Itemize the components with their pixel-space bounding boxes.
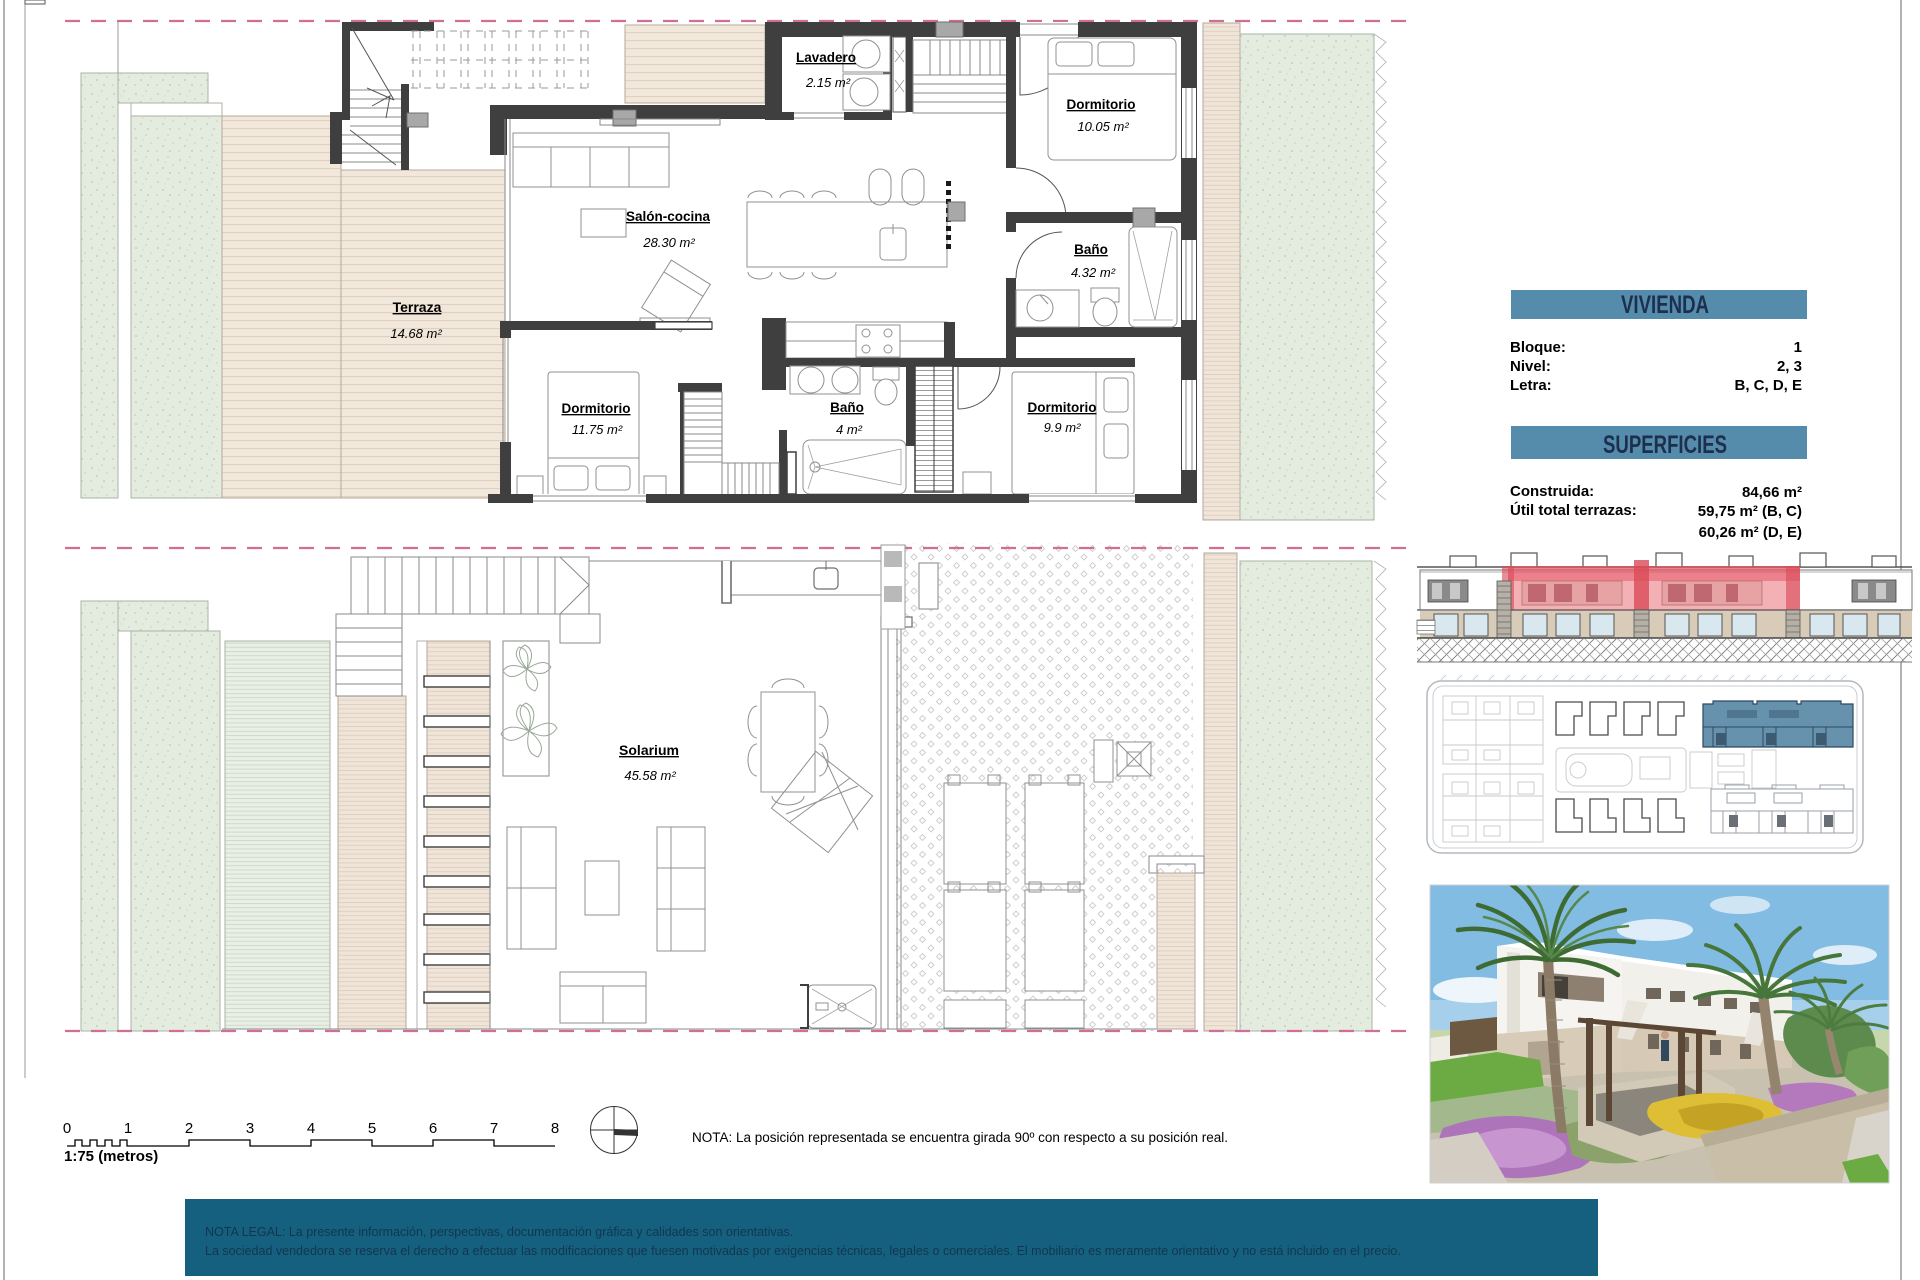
- svg-text:Terraza: Terraza: [393, 299, 442, 315]
- svg-text:5: 5: [368, 1120, 376, 1137]
- svg-text:1:75 (metros): 1:75 (metros): [64, 1148, 158, 1165]
- svg-text:60,26 m² (D, E): 60,26 m² (D, E): [1699, 524, 1802, 541]
- svg-text:Lavadero: Lavadero: [796, 50, 856, 65]
- svg-text:Construida:: Construida:: [1510, 483, 1594, 500]
- svg-text:Dormitorio: Dormitorio: [562, 401, 631, 416]
- svg-text:11.75 m²: 11.75 m²: [572, 422, 623, 437]
- svg-text:4: 4: [307, 1120, 315, 1137]
- svg-text:Dormitorio: Dormitorio: [1067, 97, 1136, 112]
- svg-text:B, C, D, E: B, C, D, E: [1734, 377, 1802, 394]
- svg-text:2: 2: [185, 1120, 193, 1137]
- svg-text:NOTA: La posición representada: NOTA: La posición representada se encuen…: [692, 1130, 1228, 1145]
- svg-text:2.15 m²: 2.15 m²: [805, 75, 851, 90]
- svg-text:Útil total terrazas:: Útil total terrazas:: [1510, 501, 1637, 519]
- svg-text:7: 7: [490, 1120, 498, 1137]
- svg-text:45.58 m²: 45.58 m²: [624, 768, 676, 783]
- svg-text:2, 3: 2, 3: [1777, 358, 1802, 375]
- svg-text:Nivel:: Nivel:: [1510, 358, 1551, 375]
- svg-text:84,66 m²: 84,66 m²: [1742, 484, 1802, 501]
- svg-text:1: 1: [1794, 339, 1802, 356]
- svg-text:8: 8: [551, 1120, 559, 1137]
- svg-text:1: 1: [124, 1120, 132, 1137]
- svg-text:Letra:: Letra:: [1510, 377, 1552, 394]
- svg-text:4.32 m²: 4.32 m²: [1071, 265, 1116, 280]
- svg-text:Baño: Baño: [1074, 242, 1108, 257]
- svg-text:4 m²: 4 m²: [836, 422, 863, 437]
- svg-text:NOTA LEGAL: La presente inform: NOTA LEGAL: La presente información, per…: [205, 1225, 793, 1239]
- svg-text:Baño: Baño: [830, 400, 864, 415]
- svg-text:3: 3: [246, 1120, 254, 1137]
- svg-text:14.68 m²: 14.68 m²: [390, 326, 442, 341]
- svg-text:Solarium: Solarium: [619, 742, 679, 758]
- svg-text:SUPERFICIES: SUPERFICIES: [1603, 431, 1727, 459]
- svg-text:La sociedad vendedora se reser: La sociedad vendedora se reserva el dere…: [205, 1244, 1401, 1258]
- svg-text:10.05 m²: 10.05 m²: [1077, 119, 1129, 134]
- svg-text:VIVIENDA: VIVIENDA: [1621, 291, 1709, 319]
- svg-text:6: 6: [429, 1120, 437, 1137]
- svg-text:9.9 m²: 9.9 m²: [1044, 420, 1082, 435]
- svg-text:59,75 m² (B, C): 59,75 m² (B, C): [1698, 503, 1802, 520]
- svg-text:28.30 m²: 28.30 m²: [642, 235, 695, 250]
- svg-text:0: 0: [63, 1120, 71, 1137]
- svg-text:Dormitorio: Dormitorio: [1028, 400, 1097, 415]
- svg-text:Bloque:: Bloque:: [1510, 339, 1566, 356]
- svg-text:Salón-cocina: Salón-cocina: [626, 209, 711, 224]
